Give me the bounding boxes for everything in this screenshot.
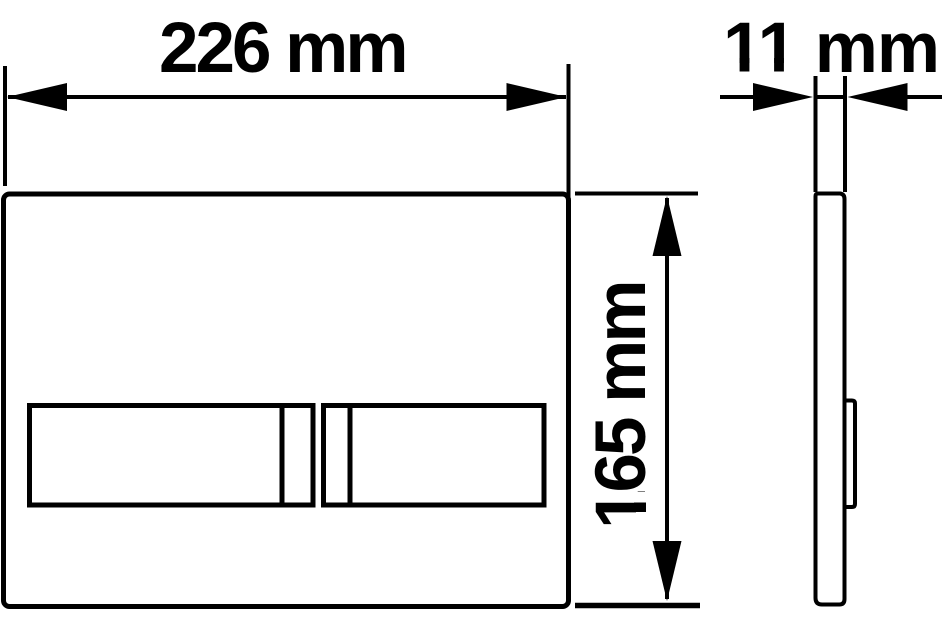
svg-text:11 mm: 11 mm [723, 9, 939, 88]
svg-text:226 mm: 226 mm [159, 9, 405, 88]
svg-text:165 mm: 165 mm [582, 283, 661, 529]
